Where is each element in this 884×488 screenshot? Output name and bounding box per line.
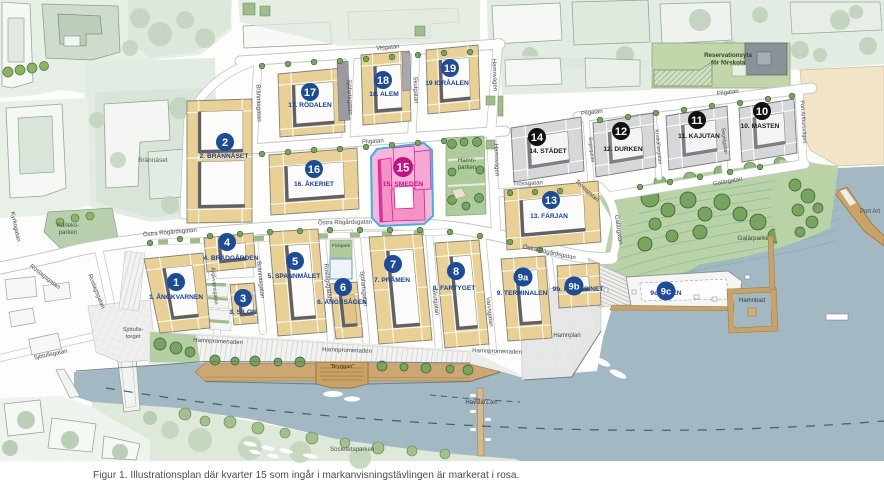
svg-text:9a: 9a [518,272,529,283]
svg-text:9b: 9b [568,281,579,292]
svg-text:Östra Rögårdsgatan: Östra Rögårdsgatan [318,219,372,227]
svg-text:13. FÄRJAN: 13. FÄRJAN [530,212,568,220]
svg-text:1. ÅNGKVARNEN: 1. ÅNGKVARNEN [149,292,203,301]
svg-text:8. FARTYGET: 8. FARTYGET [433,285,476,292]
svg-text:Fickpark: Fickpark [332,243,351,249]
svg-text:Reservationsyta: Reservationsyta [704,52,752,59]
svg-text:11: 11 [691,115,703,127]
svg-text:torget: torget [126,334,141,340]
svg-text:1: 1 [173,277,179,289]
svg-text:5. SPANNMÅLET: 5. SPANNMÅLET [268,271,321,280]
svg-text:Sjötulls-: Sjötulls- [123,327,144,333]
svg-text:3. SILON: 3. SILON [229,309,257,316]
svg-text:15. SMEDEN: 15. SMEDEN [383,181,424,188]
svg-text:3: 3 [240,293,246,305]
svg-text:2: 2 [222,137,228,149]
svg-text:Kärleks-: Kärleks- [57,223,79,229]
svg-text:11. KAJUTAN: 11. KAJUTAN [678,133,720,140]
svg-text:Hamnvägen: Hamnvägen [490,59,497,92]
svg-text:17: 17 [304,87,316,99]
svg-text:Hamnbad: Hamnbad [739,298,765,304]
svg-text:13: 13 [545,195,557,207]
svg-text:14. STÄDET: 14. STÄDET [529,147,566,155]
svg-text:för förskola: för förskola [711,60,746,67]
svg-text:16. ÅKERIET: 16. ÅKERIET [294,179,334,188]
svg-text:parken: parken [458,165,476,171]
svg-text:Hamnvägen: Hamnvägen [492,144,499,177]
svg-text:Societetsparken: Societetsparken [330,446,375,453]
svg-text:"Bryggan": "Bryggan" [330,364,355,370]
svg-text:17. RÖDALEN: 17. RÖDALEN [288,100,332,109]
svg-text:7: 7 [390,259,396,271]
svg-text:19 IGRÅALEN: 19 IGRÅALEN [425,78,469,87]
svg-text:2. BRÄNNÄSET: 2. BRÄNNÄSET [200,152,249,160]
svg-text:18: 18 [377,75,389,87]
svg-text:9c: 9c [661,286,672,297]
svg-text:19: 19 [444,63,456,75]
svg-text:Sjöfartsgatan: Sjöfartsgatan [345,79,352,115]
svg-text:Hamn-: Hamn- [458,158,476,164]
svg-text:Brännäset: Brännäset [138,157,168,164]
svg-text:16: 16 [308,164,320,176]
svg-text:Galärparken: Galärparken [737,235,773,242]
svg-text:Port Art: Port Art [860,209,880,215]
svg-text:Skutgatan: Skutgatan [412,76,419,103]
svg-text:10. MASTEN: 10. MASTEN [741,123,780,130]
svg-text:7. PRÅMEN: 7. PRÅMEN [374,275,410,284]
svg-text:18. ALEM: 18. ALEM [369,91,399,98]
svg-text:4. BRÄDGÅRDEN: 4. BRÄDGÅRDEN [204,253,259,262]
svg-text:Havslänken: Havslänken [465,400,496,406]
svg-text:5: 5 [292,256,298,268]
svg-text:8: 8 [453,266,459,278]
svg-text:12. DURKEN: 12. DURKEN [603,146,642,153]
svg-text:6. ÄNGSSÅGEN: 6. ÄNGSSÅGEN [317,297,367,306]
svg-text:12: 12 [615,126,627,138]
svg-text:6: 6 [340,282,346,294]
svg-text:14: 14 [531,132,544,144]
svg-text:10: 10 [756,106,768,118]
svg-text:4: 4 [224,237,231,249]
svg-text:Hamnplan: Hamnplan [553,333,580,339]
svg-text:9. TERMINALEN: 9. TERMINALEN [497,290,548,297]
svg-text:15: 15 [397,163,410,175]
svg-text:parken: parken [59,230,77,236]
